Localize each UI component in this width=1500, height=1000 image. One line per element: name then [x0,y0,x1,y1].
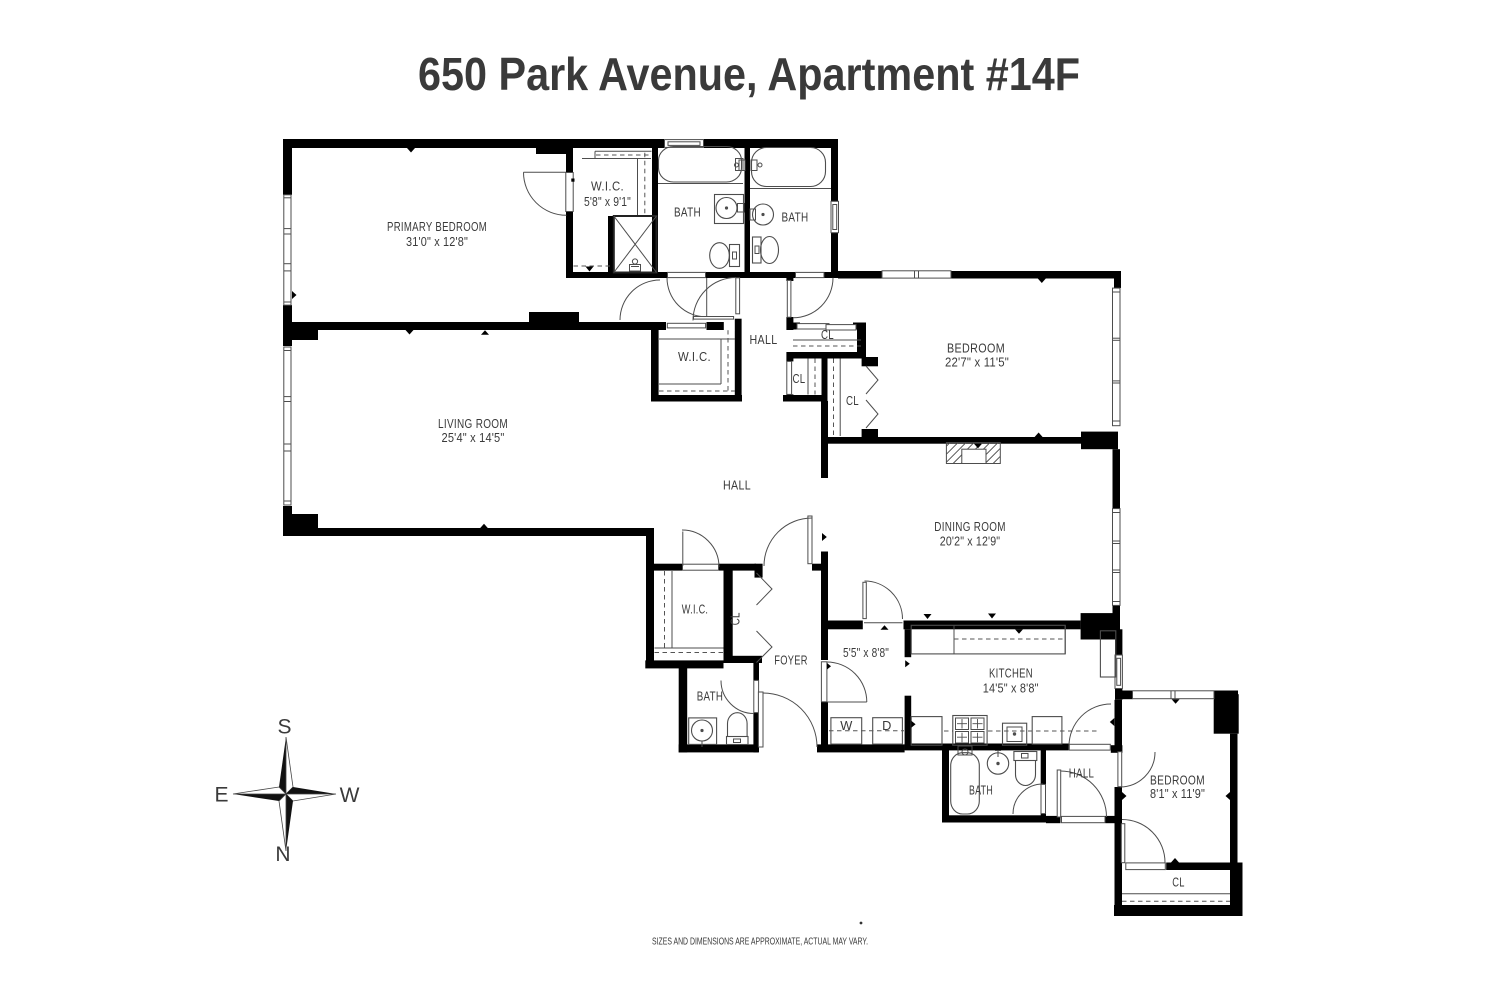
svg-text:31'0" x 12'8": 31'0" x 12'8" [406,235,468,249]
svg-text:W: W [840,718,853,733]
svg-text:BATH: BATH [697,689,724,704]
svg-text:E: E [214,784,228,807]
svg-text:BATH: BATH [969,782,993,797]
svg-text:5'8" x 9'1": 5'8" x 9'1" [584,195,631,209]
svg-text:KITCHEN: KITCHEN [989,666,1033,681]
svg-text:650 Park Avenue, Apartment #14: 650 Park Avenue, Apartment #14F [418,48,1080,100]
svg-text:W.I.C.: W.I.C. [591,179,624,194]
svg-text:BEDROOM: BEDROOM [947,341,1005,356]
svg-text:FOYER: FOYER [774,653,808,668]
svg-text:8'1" x 11'9": 8'1" x 11'9" [1150,787,1205,801]
svg-text:LIVING ROOM: LIVING ROOM [438,416,508,431]
svg-text:HALL: HALL [723,477,751,492]
svg-text:CL: CL [1172,875,1185,890]
svg-text:14'5" x 8'8": 14'5" x 8'8" [983,682,1039,696]
svg-text:PRIMARY BEDROOM: PRIMARY BEDROOM [387,219,487,234]
svg-text:22'7" x 11'5": 22'7" x 11'5" [945,356,1009,370]
svg-text:BATH: BATH [782,210,809,225]
svg-text:D: D [882,718,892,733]
svg-text:W.I.C.: W.I.C. [682,601,709,616]
svg-text:25'4" x 14'5": 25'4" x 14'5" [442,431,505,445]
svg-text:BEDROOM: BEDROOM [1150,773,1205,788]
svg-text:BATH: BATH [674,205,701,220]
svg-text:W: W [340,784,360,807]
svg-text:CL: CL [793,371,806,386]
svg-text:CL: CL [846,393,859,408]
svg-text:5'5" x 8'8": 5'5" x 8'8" [843,646,889,660]
svg-text:20'2" x 12'9": 20'2" x 12'9" [940,534,1001,548]
svg-text:HALL: HALL [750,332,778,347]
svg-text:W.I.C.: W.I.C. [678,349,711,364]
svg-text:DINING ROOM: DINING ROOM [934,519,1006,534]
svg-text:N: N [275,843,290,866]
svg-text:CL: CL [728,612,743,625]
svg-text:HALL: HALL [1069,765,1094,780]
svg-text:SIZES AND DIMENSIONS ARE APPRO: SIZES AND DIMENSIONS ARE APPROXIMATE, AC… [652,937,868,948]
svg-text:S: S [277,716,291,739]
svg-text:CL: CL [821,327,834,342]
